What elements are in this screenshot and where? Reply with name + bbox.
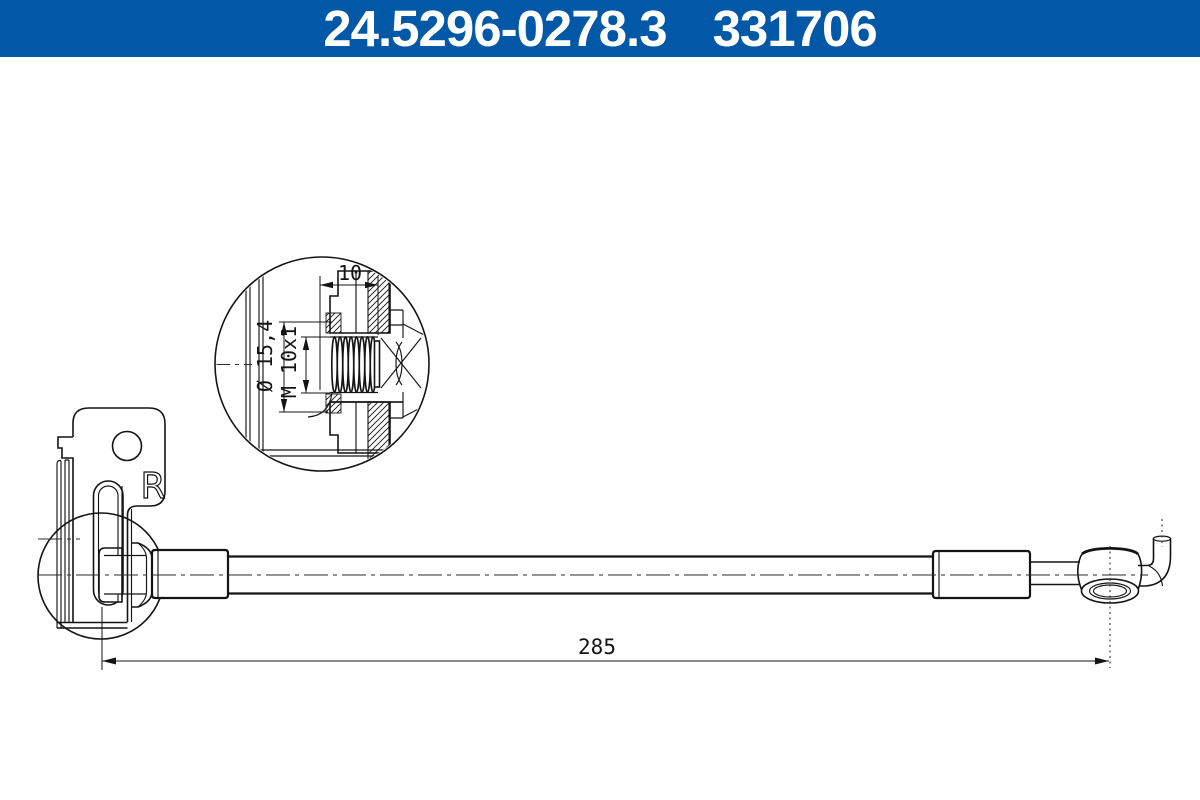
thread-length-label: 10	[338, 261, 362, 285]
hose-line	[152, 550, 1080, 598]
right-marking: R	[140, 466, 165, 507]
technical-drawing: 10 Ø 15,4 M 10x1	[0, 0, 1200, 800]
washer-top-hatch	[326, 313, 341, 333]
thread-spec-dimension: M 10x1	[277, 326, 330, 398]
washer-bottom-hatch	[326, 394, 341, 413]
magnified-fitting-section	[206, 245, 428, 485]
banjo-neck	[1030, 562, 1080, 585]
bracket-hole	[113, 432, 142, 461]
banjo-right-edge	[1138, 554, 1142, 589]
thread-spec-label: M 10x1	[277, 326, 301, 398]
bracket-bottom-edge	[57, 623, 128, 629]
overall-length-label: 285	[578, 635, 616, 659]
detail-circle-view: 10 Ø 15,4 M 10x1	[206, 245, 429, 485]
drawing-page: 24.5296-0278.3 331706	[0, 0, 1200, 800]
length-dimension: 285	[102, 607, 1109, 670]
elbow-pipe	[1138, 519, 1171, 586]
banjo-fitting	[1078, 519, 1171, 603]
dimension-arrow-right	[1095, 658, 1109, 665]
outer-diameter-label: Ø 15,4	[253, 320, 277, 392]
bracket-flange-strip	[57, 460, 69, 628]
crimp-collar-left	[152, 550, 228, 598]
thread-profile	[330, 337, 380, 393]
locknut-bottom-hatch	[368, 402, 389, 460]
dimension-arrow-left	[102, 658, 116, 665]
